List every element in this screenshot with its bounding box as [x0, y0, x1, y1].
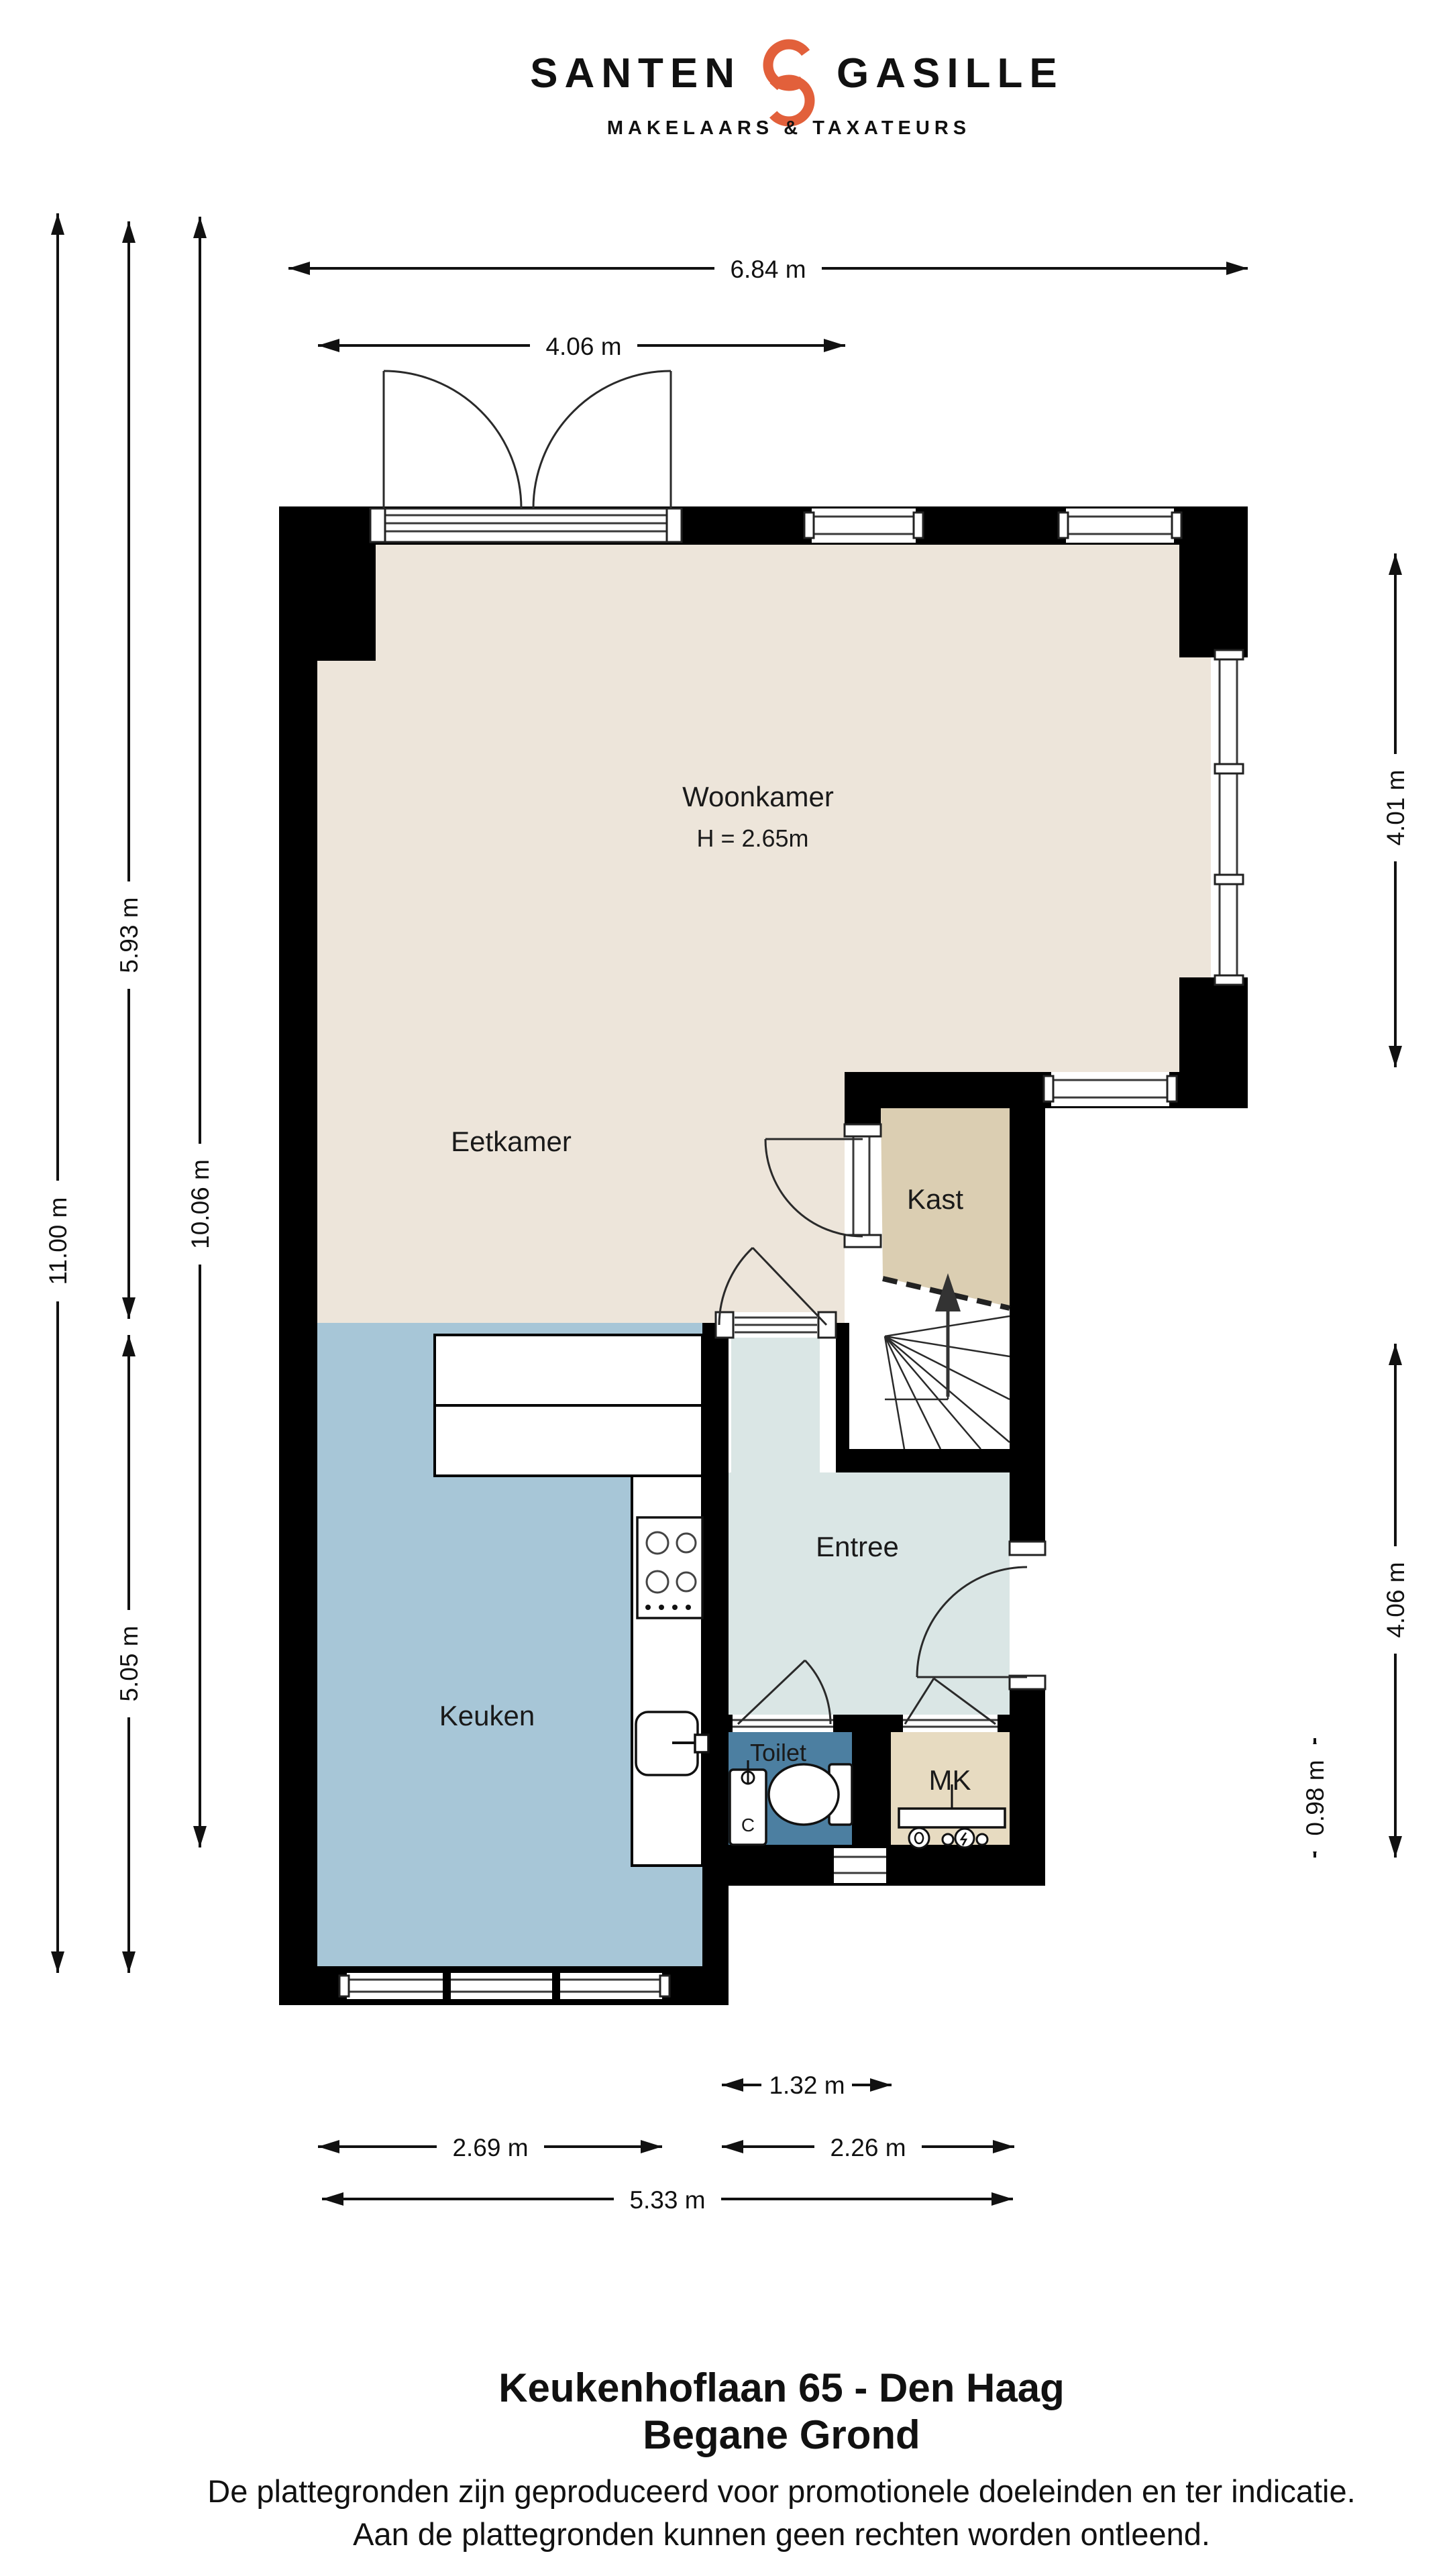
footer: Keukenhoflaan 65 - Den Haag Begane Grond… [207, 2365, 1355, 2552]
counter-row-lower [435, 1405, 702, 1476]
svg-text:1.32 m: 1.32 m [769, 2072, 845, 2099]
svg-text:6.84 m: 6.84 m [730, 256, 806, 283]
brand-name-left: SANTEN [530, 50, 741, 97]
label-entree: Entree [816, 1531, 899, 1562]
svg-text:2.69 m: 2.69 m [452, 2134, 528, 2161]
floorplan-page: SANTEN GASILLE MAKELAARS & TAXATEURS [0, 0, 1449, 2576]
toilet-bowl-icon [769, 1764, 852, 1825]
window-right-tall [1211, 650, 1248, 985]
svg-text:10.06 m: 10.06 m [186, 1159, 214, 1249]
label-woonkamer: Woonkamer [682, 781, 834, 812]
dim-top-door: 4.06 m [318, 331, 845, 360]
svg-text:5.33 m: 5.33 m [629, 2186, 705, 2214]
dim-left-inner: 10.06 m [185, 217, 215, 1847]
window-kast-top [1044, 1072, 1177, 1106]
svg-text:4.06 m: 4.06 m [545, 333, 621, 360]
dim-right-upper: 4.01 m [1381, 553, 1410, 1067]
hand-basin-icon: C [730, 1760, 766, 1845]
sink-icon [636, 1712, 708, 1775]
mk-door-opening [903, 1715, 998, 1732]
basin-cold-water-label: C [741, 1815, 755, 1835]
dim-bottom-hall: 1.32 m [722, 2072, 892, 2099]
dim-left-lower: 5.05 m [114, 1335, 144, 1973]
disclaimer-line-1: De plattegronden zijn geproduceerd voor … [207, 2473, 1355, 2509]
counter-row-upper [435, 1335, 702, 1405]
window-toilet-bottom [834, 1848, 886, 1883]
dim-bottom-total: 5.33 m [322, 2184, 1013, 2214]
page-title: Keukenhoflaan 65 - Den Haag [498, 2365, 1065, 2410]
wall-kast-right [1010, 1072, 1045, 1472]
dim-top-total: 6.84 m [288, 254, 1248, 283]
wall-pier-top-right [1179, 506, 1248, 657]
label-eetkamer: Eetkamer [451, 1126, 572, 1157]
brand-name-right: GASILLE [837, 50, 1064, 97]
floor-woonkamer-eetkamer [317, 545, 1211, 1323]
disclaimer-line-2: Aan de plattegronden kunnen geen rechten… [353, 2516, 1210, 2552]
svg-text:5.05 m: 5.05 m [115, 1625, 143, 1701]
window-keuken-bottom [339, 1973, 669, 1999]
dim-left-total: 11.00 m [43, 213, 72, 1973]
dim-bottom-kitchen: 2.69 m [318, 2132, 662, 2161]
front-door-opening [1010, 1542, 1045, 1689]
wall-keuken-right [702, 1323, 729, 2005]
label-mk: MK [929, 1764, 971, 1796]
svg-text:5.93 m: 5.93 m [115, 897, 143, 973]
window-top-right [1059, 508, 1181, 543]
floor-plan-svg: SANTEN GASILLE MAKELAARS & TAXATEURS [0, 0, 1449, 2576]
floor-entree [729, 1472, 1010, 1715]
kast-door-opening [845, 1124, 881, 1247]
sg-monogram-icon [768, 44, 810, 121]
label-keuken: Keuken [439, 1700, 535, 1731]
svg-text:2.26 m: 2.26 m [830, 2134, 906, 2161]
svg-text:4.06 m: 4.06 m [1382, 1562, 1409, 1638]
wall-left [279, 506, 317, 2005]
dim-right-small: 0.98 m [1300, 1738, 1330, 1858]
french-doors [384, 371, 671, 508]
toilet-door-opening [733, 1715, 833, 1732]
brand-tagline: MAKELAARS & TAXATEURS [607, 117, 971, 139]
wall-stairs-bottom [836, 1449, 1045, 1472]
label-kast: Kast [907, 1183, 963, 1215]
dim-left-upper: 5.93 m [114, 221, 144, 1319]
label-woonkamer-height: H = 2.65m [696, 824, 808, 852]
dim-right-lower: 4.06 m [1381, 1344, 1410, 1858]
french-door-opening [370, 508, 682, 542]
stove-icon [637, 1517, 702, 1618]
wall-pier-top-left [279, 506, 376, 661]
window-top-left [804, 508, 923, 543]
floor-entree-passage [731, 1335, 820, 1476]
svg-text:0.98 m: 0.98 m [1301, 1760, 1329, 1835]
label-toilet: Toilet [750, 1739, 806, 1766]
svg-text:4.01 m: 4.01 m [1382, 769, 1409, 845]
dim-bottom-entree: 2.26 m [722, 2132, 1014, 2161]
page-subtitle: Begane Grond [643, 2412, 920, 2457]
svg-text:11.00 m: 11.00 m [44, 1197, 72, 1285]
brand-logo: SANTEN GASILLE MAKELAARS & TAXATEURS [530, 44, 1064, 139]
